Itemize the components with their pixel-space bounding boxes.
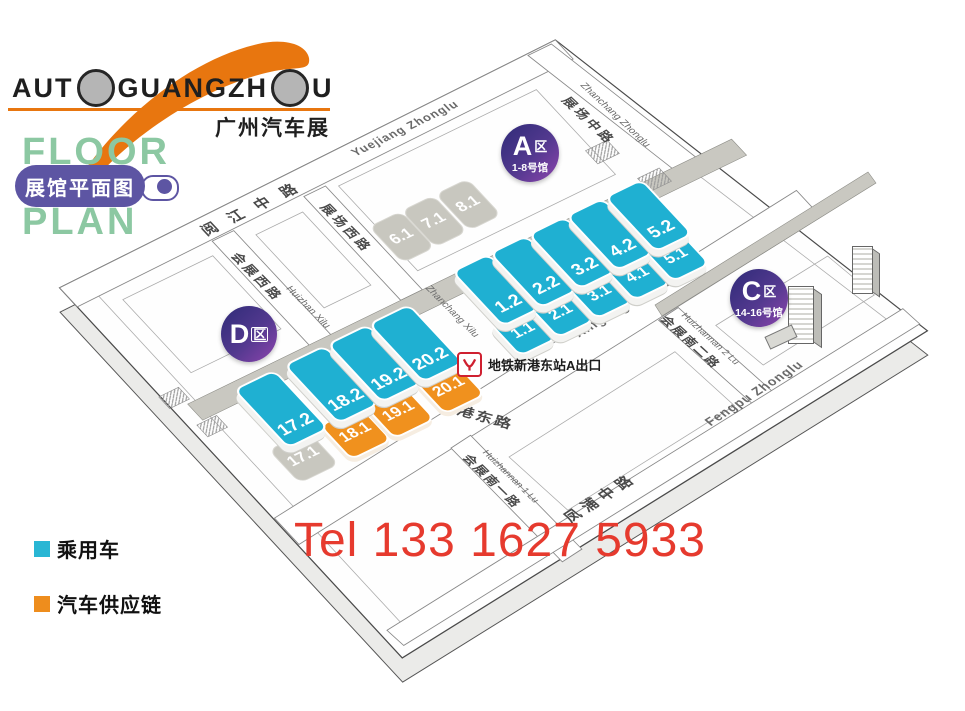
metro-icon	[457, 352, 482, 377]
zone-badge-a: A区 1-8号馆	[501, 124, 559, 182]
supply-color-swatch	[34, 596, 50, 612]
metro-exit-marker: 地铁新港东站A出口	[457, 352, 601, 377]
contact-phone: Tel 133 1627 5933	[235, 513, 765, 568]
zone-d-suffix: 区	[251, 327, 268, 342]
legend: 乘用车 汽车供应链	[34, 534, 162, 644]
brand-text-aut: AUT	[12, 73, 74, 104]
zone-c-letter: C	[742, 278, 762, 305]
tire-icon	[77, 69, 115, 107]
brand-text-u: U	[312, 73, 334, 104]
legend-row-supply: 汽车供应链	[34, 589, 162, 618]
brand-underline	[8, 108, 330, 111]
zone-c-range: 14-16号馆	[735, 308, 783, 319]
zone-a-letter: A	[513, 133, 533, 160]
legend-row-passenger: 乘用车	[34, 534, 162, 563]
tire-icon	[271, 69, 309, 107]
legend-label-supply: 汽车供应链	[57, 589, 162, 618]
brand-text-guangzh: GUANGZH	[118, 73, 269, 104]
zone-a-range: 1-8号馆	[512, 163, 548, 174]
zone-c-suffix: 区	[763, 285, 776, 298]
zone-badge-c: C区 14-16号馆	[730, 269, 788, 327]
passenger-color-swatch	[34, 541, 50, 557]
plan-title: PLAN	[22, 203, 137, 241]
brand-logo-block: AUT GUANGZH U 广州汽车展 FLOOR 展馆平面图 PLAN	[0, 0, 360, 260]
legend-label-passenger: 乘用车	[57, 534, 120, 563]
metro-exit-label: 地铁新港东站A出口	[488, 355, 601, 374]
brand-wordmark: AUT GUANGZH U	[12, 70, 342, 106]
zone-d-letter: D	[230, 321, 250, 348]
floorplan-badge-dot	[157, 179, 172, 194]
zone-a-suffix: 区	[534, 140, 547, 153]
zone-badge-d: D区	[221, 306, 277, 362]
floorplan-badge: 展馆平面图	[15, 165, 145, 207]
